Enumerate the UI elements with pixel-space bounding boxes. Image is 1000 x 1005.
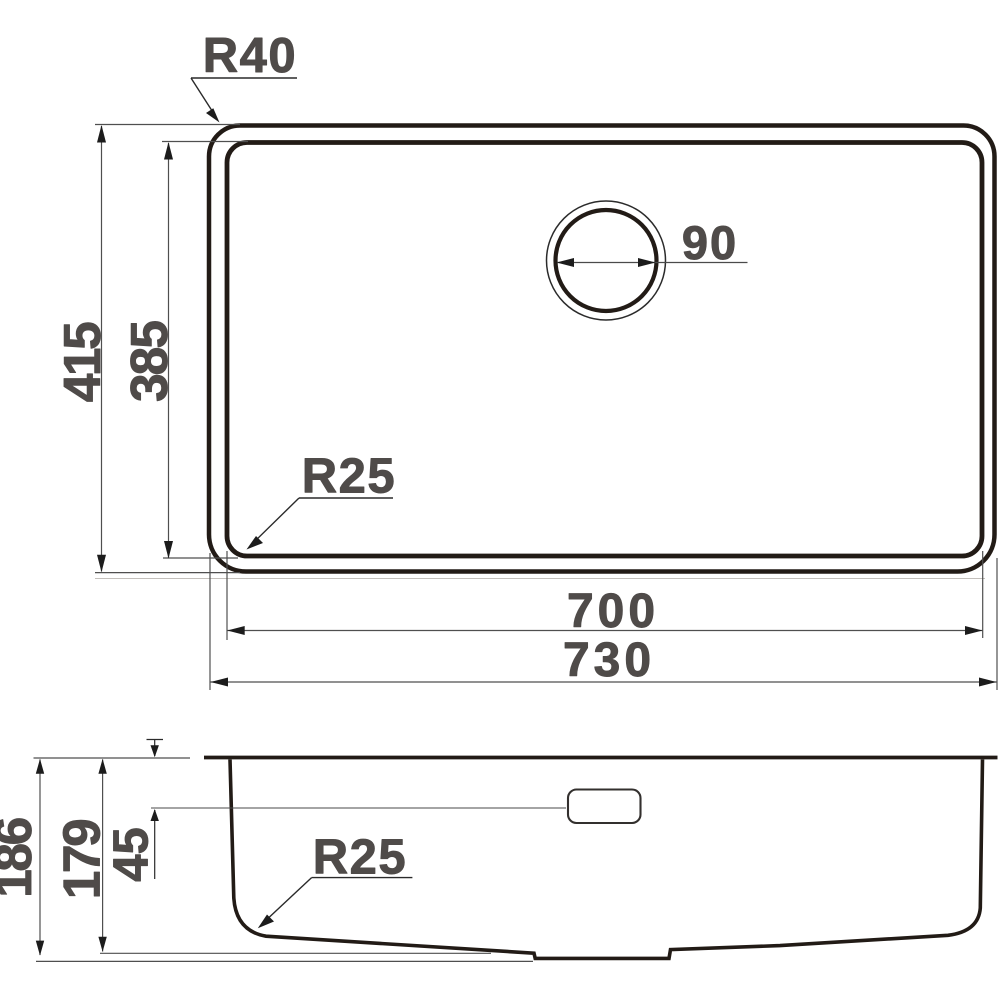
- svg-text:45: 45: [105, 827, 159, 882]
- svg-text:179: 179: [53, 820, 111, 899]
- svg-text:R40: R40: [203, 29, 297, 83]
- svg-text:385: 385: [120, 321, 178, 402]
- svg-text:730: 730: [563, 634, 655, 687]
- svg-text:R25: R25: [302, 450, 396, 504]
- svg-text:90: 90: [682, 216, 738, 269]
- svg-text:415: 415: [53, 322, 111, 402]
- svg-text:700: 700: [567, 585, 659, 638]
- svg-text:R25: R25: [313, 831, 407, 885]
- svg-text:186: 186: [0, 818, 42, 897]
